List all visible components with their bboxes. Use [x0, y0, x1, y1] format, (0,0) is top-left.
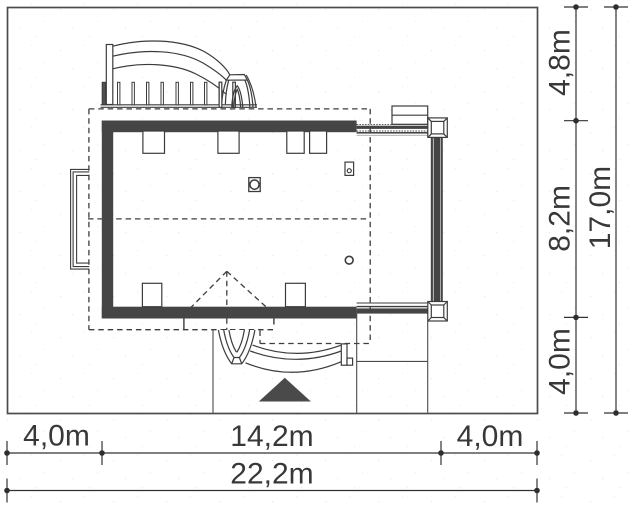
svg-text:8,2m: 8,2m: [544, 185, 577, 252]
svg-text:22,2m: 22,2m: [230, 458, 313, 491]
svg-text:4,0m: 4,0m: [23, 420, 90, 453]
svg-text:17,0m: 17,0m: [584, 166, 617, 249]
svg-text:4,8m: 4,8m: [544, 29, 577, 96]
svg-text:4,0m: 4,0m: [544, 328, 577, 395]
svg-text:14,2m: 14,2m: [230, 420, 313, 453]
svg-text:4,0m: 4,0m: [457, 420, 524, 453]
